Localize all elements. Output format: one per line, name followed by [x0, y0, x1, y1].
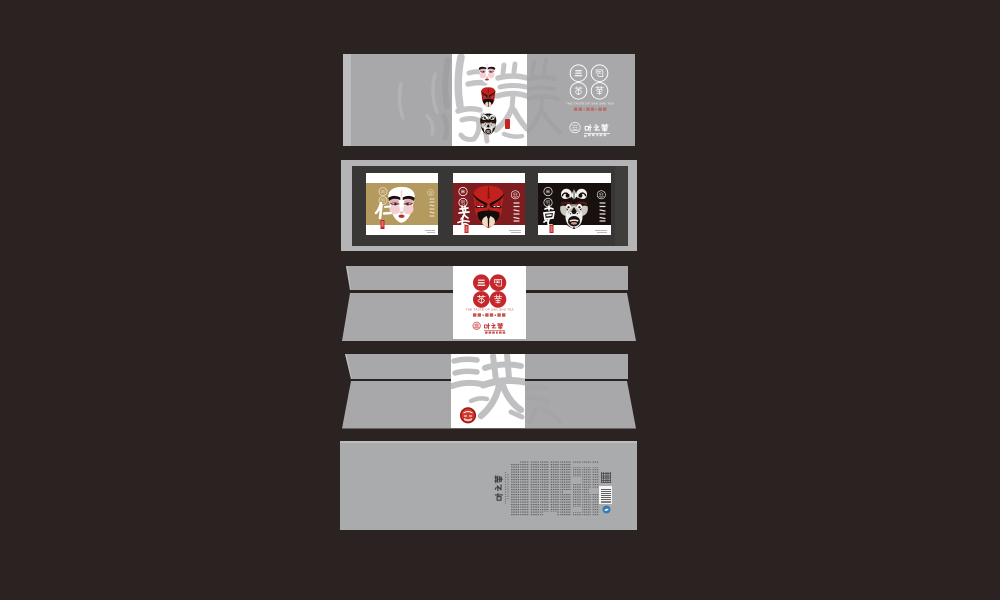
svg-text:THE TASTE OF SAN SHU TEA: THE TASTE OF SAN SHU TEA	[566, 102, 615, 106]
svg-text:THE TASTE OF SAN SHU TEA: THE TASTE OF SAN SHU TEA	[466, 308, 515, 312]
